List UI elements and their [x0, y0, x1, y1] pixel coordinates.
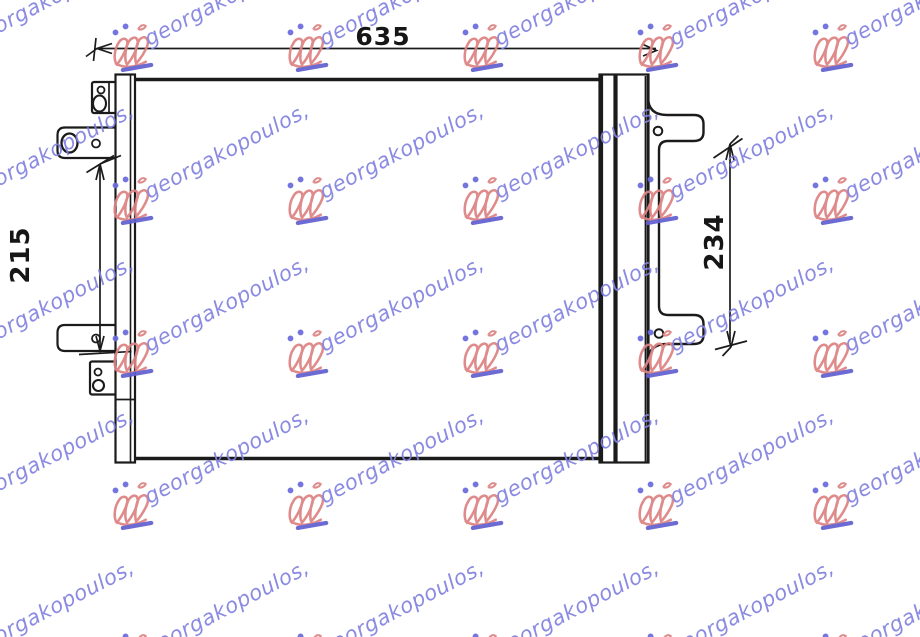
- dim-left-height-label: 215: [6, 226, 36, 283]
- bracket-hole: [655, 329, 664, 338]
- bracket-hole: [95, 369, 102, 376]
- bracket-hole: [93, 96, 106, 112]
- right-tank: [600, 75, 649, 463]
- dimension-right-height: 234: [700, 136, 747, 357]
- bracket-hole: [654, 127, 663, 136]
- bracket-top-left: [92, 82, 118, 113]
- bracket-lower-left: [58, 325, 119, 351]
- bracket-hole: [92, 140, 100, 148]
- diagram-canvas: 635 215 234 georgakopoulos,georgakopoulo…: [0, 0, 920, 637]
- bracket-oval-hole: [62, 134, 78, 153]
- condenser-technical-drawing: 635 215 234: [0, 0, 920, 637]
- dim-right-height-label: 234: [700, 213, 730, 270]
- bracket-hole: [98, 87, 105, 94]
- dim-width-label: 635: [355, 22, 410, 51]
- bracket-bottom-left: [90, 362, 118, 395]
- bracket-hole: [93, 380, 104, 391]
- dimension-width: 635: [86, 22, 657, 61]
- condenser-body: [116, 75, 649, 463]
- bracket-right: [648, 97, 704, 362]
- bracket-upper-left: [58, 128, 119, 159]
- left-tank: [116, 75, 136, 463]
